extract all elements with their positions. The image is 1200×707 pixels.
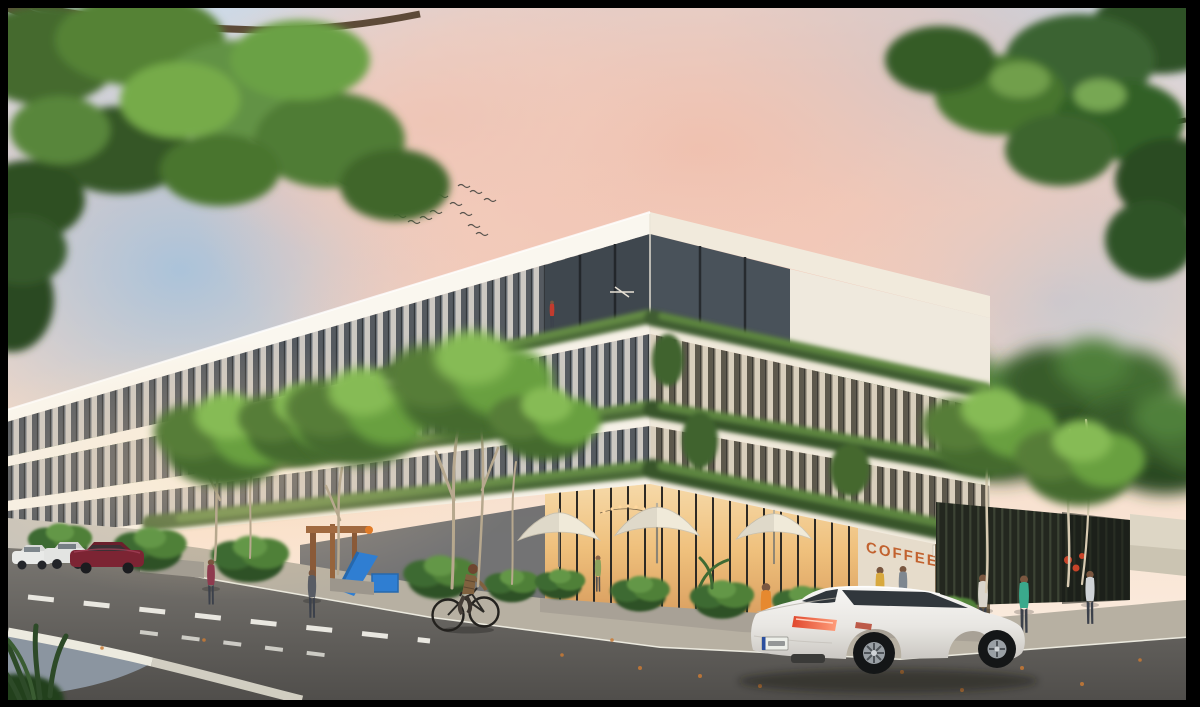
front-wheel (978, 630, 1016, 668)
license-plate (762, 637, 788, 650)
rear-wheel (853, 632, 895, 674)
architectural-rendering: COFFEE (0, 0, 1200, 707)
slide-platform (372, 574, 398, 592)
screenshot-frame: COFFEE (0, 0, 1200, 707)
exhaust (791, 654, 825, 663)
